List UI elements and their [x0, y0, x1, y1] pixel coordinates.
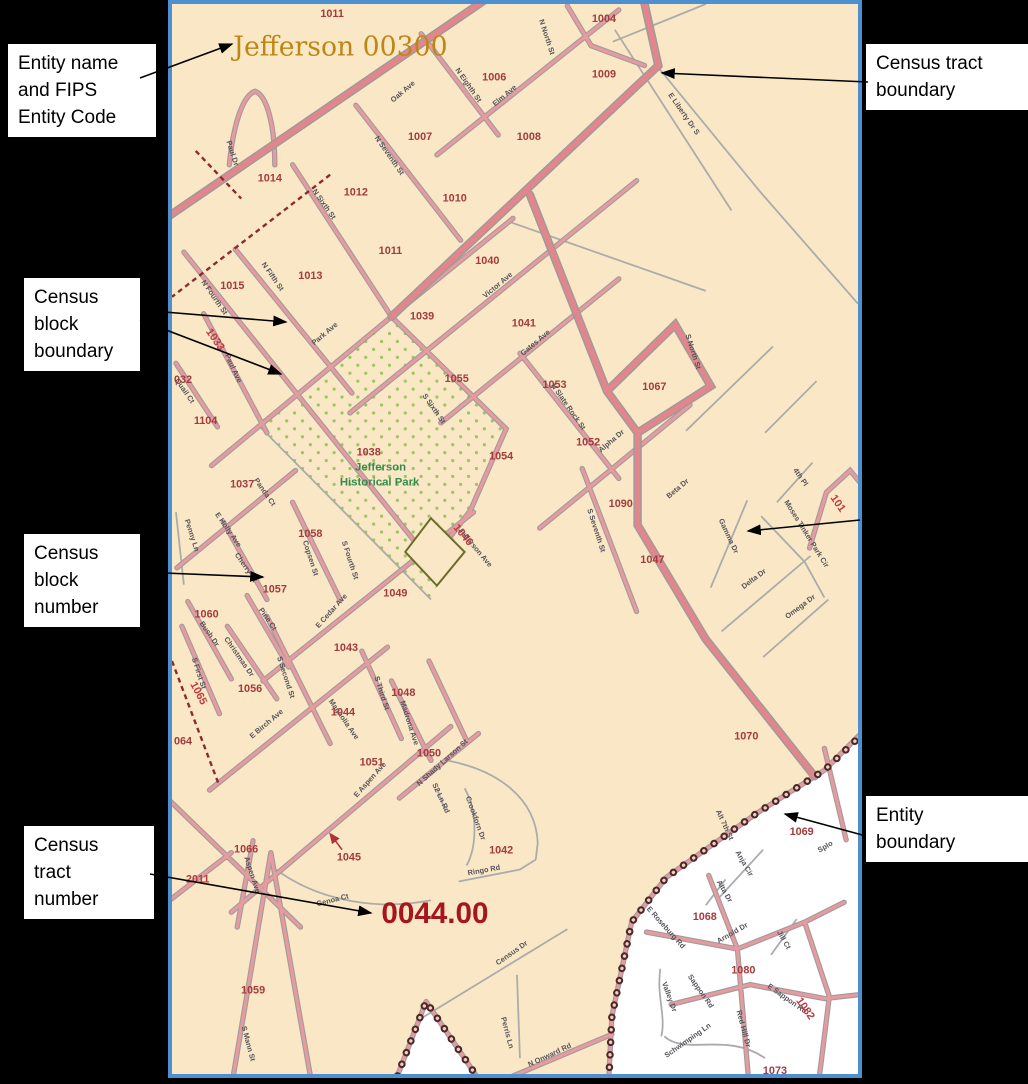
- block-number-partial: 032: [174, 374, 192, 386]
- block-number: 1053: [542, 379, 566, 391]
- callout-line: boundary: [876, 829, 1018, 856]
- park-name-line1: Jefferson: [355, 461, 406, 473]
- callout-block-boundary: Census block boundary: [24, 278, 140, 371]
- block-number: 1057: [263, 584, 287, 596]
- block-number: 1069: [790, 826, 814, 838]
- block-number: 1009: [592, 68, 616, 80]
- callout-line: Census: [34, 832, 144, 859]
- block-number: 1051: [360, 756, 384, 768]
- block-number: 1060: [195, 608, 219, 620]
- block-number-partial: 064: [174, 735, 192, 747]
- block-number: 1011: [379, 245, 403, 257]
- block-number: 1011: [320, 8, 344, 20]
- block-number: 1008: [517, 131, 541, 143]
- census-map: Oak Ave N North St Elm Ave N Eighth St E…: [168, 0, 862, 1078]
- park-name-line2: Historical Park: [340, 476, 420, 488]
- block-number: 1048: [391, 687, 415, 699]
- block-number: 1007: [408, 131, 432, 143]
- callout-tract-boundary: Census tract boundary: [866, 44, 1028, 110]
- block-number: 1104: [194, 415, 218, 427]
- block-number: 1049: [383, 588, 407, 600]
- block-number: 1045: [337, 852, 361, 864]
- block-number: 1066: [234, 844, 258, 856]
- callout-line: Census: [34, 284, 130, 311]
- block-number: 1044: [331, 707, 355, 719]
- callout-line: block: [34, 567, 130, 594]
- entity-title: Jefferson 00300: [230, 32, 447, 63]
- callout-entity-boundary: Entity boundary: [866, 796, 1028, 862]
- callout-line: number: [34, 594, 130, 621]
- callout-line: Entity: [876, 802, 1018, 829]
- block-number: 1014: [258, 173, 282, 185]
- block-number: 1040: [475, 255, 499, 267]
- block-number: 1068: [693, 911, 717, 923]
- block-number: 1013: [298, 270, 322, 282]
- block-number: 1055: [445, 373, 469, 385]
- tract-number: 0044.00: [381, 897, 488, 930]
- block-number: 1006: [482, 71, 506, 83]
- callout-block-number: Census block number: [24, 534, 140, 627]
- callout-line: Census: [34, 540, 130, 567]
- block-number: 1052: [576, 437, 600, 449]
- callout-entity-name: Entity name and FIPS Entity Code: [8, 44, 156, 137]
- block-number: 1050: [417, 747, 441, 759]
- callout-line: Entity Code: [18, 104, 146, 131]
- callout-line: Census tract: [876, 50, 1018, 77]
- block-number: 1043: [334, 642, 358, 654]
- block-number: 1054: [489, 451, 513, 463]
- block-number: 1015: [220, 280, 244, 292]
- map-canvas: Oak Ave N North St Elm Ave N Eighth St E…: [172, 4, 858, 1074]
- park-block-number: 1038: [357, 447, 381, 459]
- callout-line: boundary: [876, 77, 1018, 104]
- callout-tract-number: Census tract number: [24, 826, 154, 919]
- block-number: 1080: [731, 965, 755, 977]
- block-number: 1037: [230, 478, 254, 490]
- block-number: 1090: [609, 498, 633, 510]
- callout-line: block: [34, 311, 130, 338]
- callout-line: number: [34, 886, 144, 913]
- block-number: 1039: [410, 311, 434, 323]
- callout-line: boundary: [34, 338, 130, 365]
- block-number: 1058: [298, 528, 322, 540]
- figure-page: Oak Ave N North St Elm Ave N Eighth St E…: [0, 0, 1028, 1084]
- block-number: 1067: [642, 381, 666, 393]
- block-number: 1073: [763, 1065, 787, 1074]
- block-number: 1059: [241, 985, 265, 997]
- block-number: 1041: [512, 318, 536, 330]
- block-number: 1010: [443, 193, 467, 205]
- callout-line: tract: [34, 859, 144, 886]
- callout-line: and FIPS: [18, 77, 146, 104]
- block-number: 1004: [592, 13, 616, 25]
- callout-line: Entity name: [18, 50, 146, 77]
- block-number: 1056: [238, 683, 262, 695]
- block-number: 1042: [489, 845, 513, 857]
- block-number: 1012: [344, 187, 368, 199]
- block-number: 1047: [640, 554, 664, 566]
- block-number: 1070: [734, 730, 758, 742]
- block-number: 2011: [186, 873, 210, 885]
